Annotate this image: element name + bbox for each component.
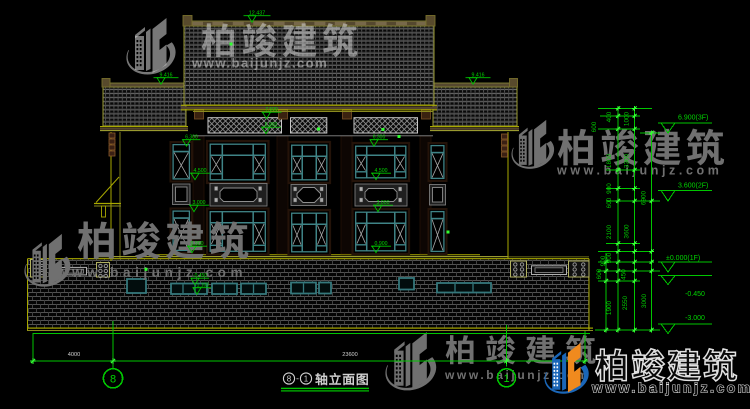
- svg-text:3.600(2F): 3.600(2F): [678, 183, 708, 190]
- svg-text:1: 1: [304, 374, 309, 383]
- svg-text:600: 600: [591, 121, 598, 132]
- svg-text:-: -: [296, 374, 299, 384]
- svg-text:600: 600: [606, 197, 613, 208]
- svg-text:23600: 23600: [342, 352, 358, 358]
- svg-text:1: 1: [503, 373, 509, 385]
- svg-text:6.900(3F): 6.900(3F): [678, 115, 708, 122]
- svg-text:900: 900: [600, 255, 607, 266]
- svg-text:2100: 2100: [606, 224, 613, 239]
- svg-text:±0.000(1F): ±0.000(1F): [666, 255, 700, 262]
- svg-text:www.baijunjz.com: www.baijunjz.com: [56, 265, 247, 280]
- svg-text:8: 8: [287, 374, 292, 383]
- svg-text:2550: 2550: [622, 295, 629, 310]
- svg-text:-0.450: -0.450: [685, 291, 705, 298]
- svg-text:www.baijunjz.com: www.baijunjz.com: [556, 164, 722, 178]
- svg-text:1900: 1900: [606, 300, 613, 315]
- svg-text:www.baijunjz.com: www.baijunjz.com: [191, 56, 328, 71]
- svg-text:-3.000: -3.000: [685, 315, 705, 322]
- svg-text:900: 900: [606, 252, 613, 263]
- svg-text:6900: 6900: [641, 190, 648, 205]
- svg-text:www.baijunjz.com: www.baijunjz.com: [591, 381, 750, 396]
- svg-text:1800: 1800: [606, 153, 613, 168]
- svg-text:400: 400: [606, 111, 613, 122]
- svg-text:450: 450: [621, 269, 628, 280]
- svg-text:3000: 3000: [641, 293, 648, 308]
- svg-text:3300: 3300: [624, 153, 631, 168]
- svg-text:8: 8: [110, 374, 116, 386]
- svg-text:1000: 1000: [624, 111, 631, 126]
- svg-text:4000: 4000: [68, 352, 80, 358]
- svg-text:3600: 3600: [624, 224, 631, 239]
- svg-text:600: 600: [596, 268, 603, 279]
- svg-text:900: 900: [606, 183, 613, 194]
